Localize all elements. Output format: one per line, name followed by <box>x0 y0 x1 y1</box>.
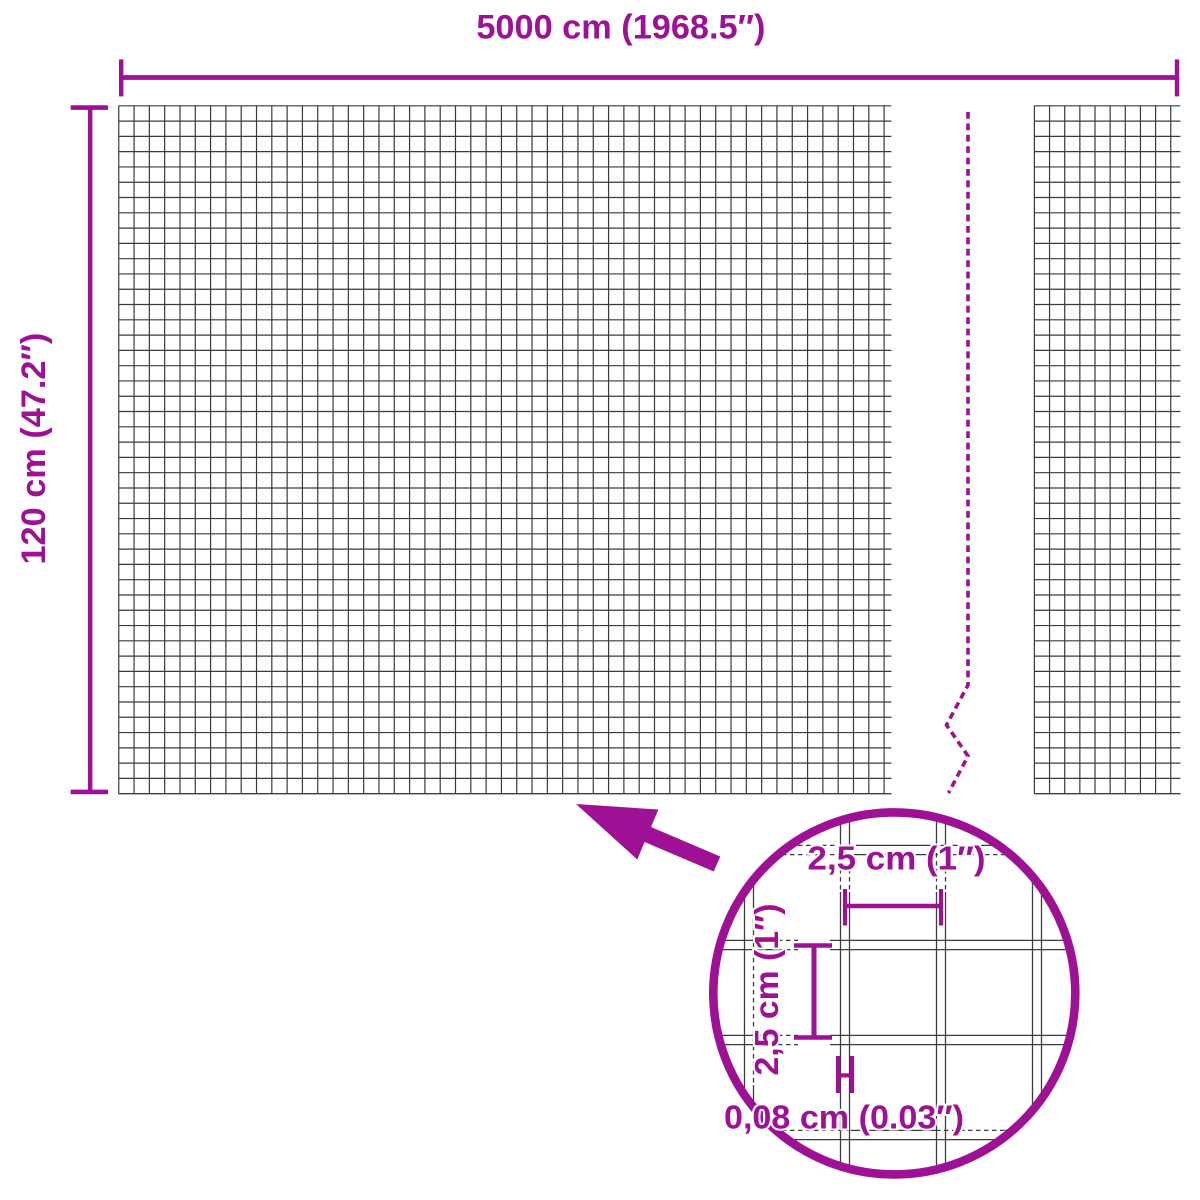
svg-text:5000 cm (1968.5″): 5000 cm (1968.5″) <box>476 9 765 47</box>
svg-text:2,5 cm (1″): 2,5 cm (1″) <box>748 904 785 1076</box>
svg-text:120 cm (47.2″): 120 cm (47.2″) <box>15 333 53 565</box>
svg-text:0,08 cm (0.03″): 0,08 cm (0.03″) <box>724 1098 964 1135</box>
svg-text:2,5 cm (1″): 2,5 cm (1″) <box>808 840 986 877</box>
